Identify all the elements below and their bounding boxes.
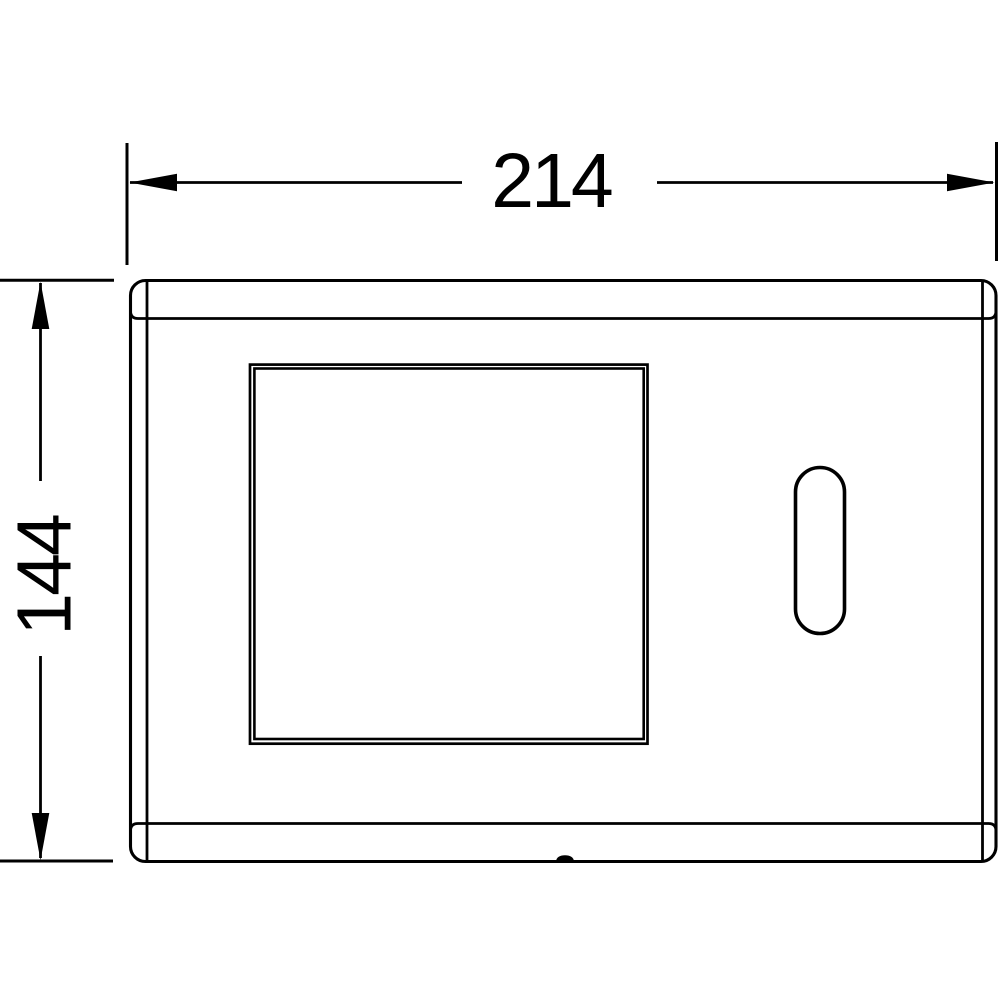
- svg-text:144: 144: [2, 515, 88, 636]
- svg-text:214: 214: [491, 138, 612, 224]
